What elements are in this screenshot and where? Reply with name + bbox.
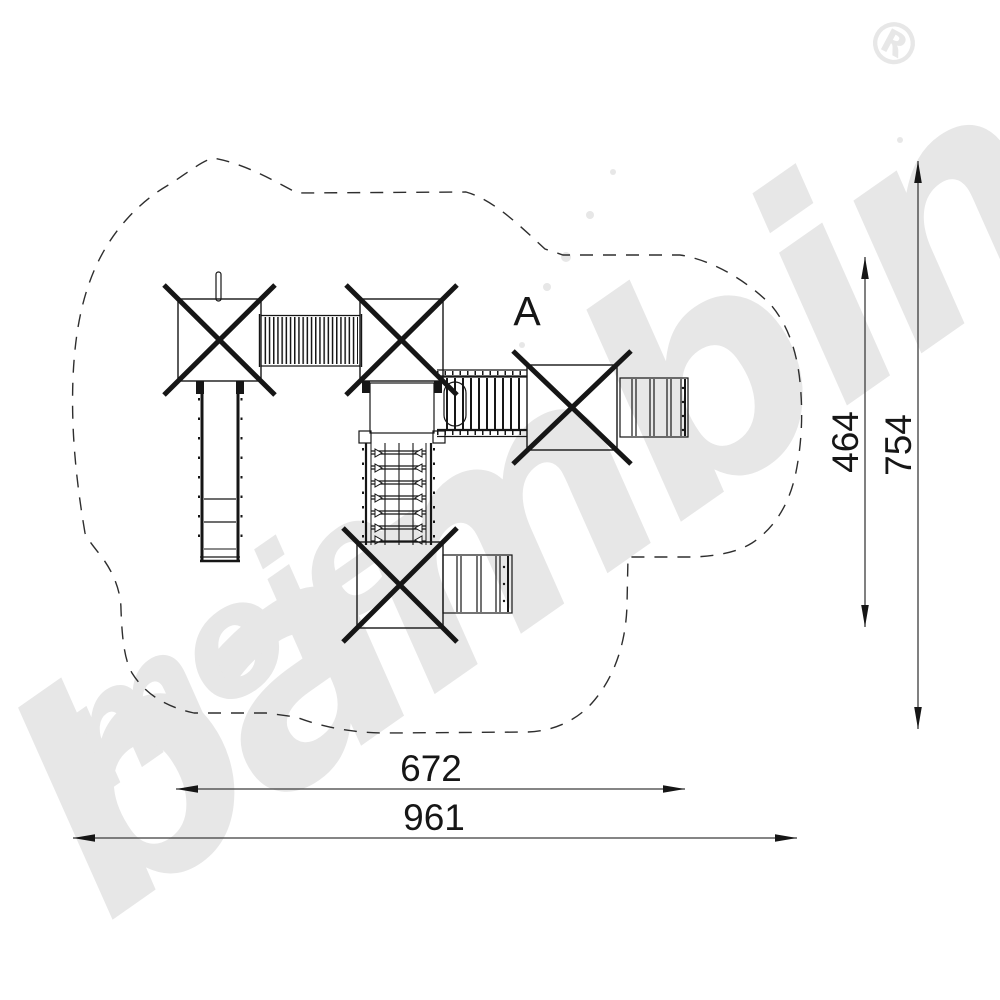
brand-watermark: moje bambino ® — [0, 0, 1000, 983]
dimension-value: 961 — [403, 797, 465, 838]
playground-plan-drawing: moje bambino ® — [0, 0, 1000, 1000]
section-label: A — [513, 288, 541, 334]
plan-svg: moje bambino ® — [0, 0, 1000, 1000]
arrow-right-icon — [663, 785, 685, 793]
arrow-right-icon — [775, 834, 797, 842]
tower-roof-icon — [164, 272, 275, 395]
tunnel-bridge-icon — [260, 314, 362, 367]
arrow-down-icon — [861, 605, 869, 627]
watermark-word-bambino: bambino — [0, 0, 1000, 983]
dimension-value: 464 — [825, 411, 866, 473]
pole-icon — [216, 272, 221, 301]
arrow-down-icon — [914, 707, 922, 729]
dimension-value: 754 — [878, 414, 919, 476]
dimension-value: 672 — [400, 748, 462, 789]
